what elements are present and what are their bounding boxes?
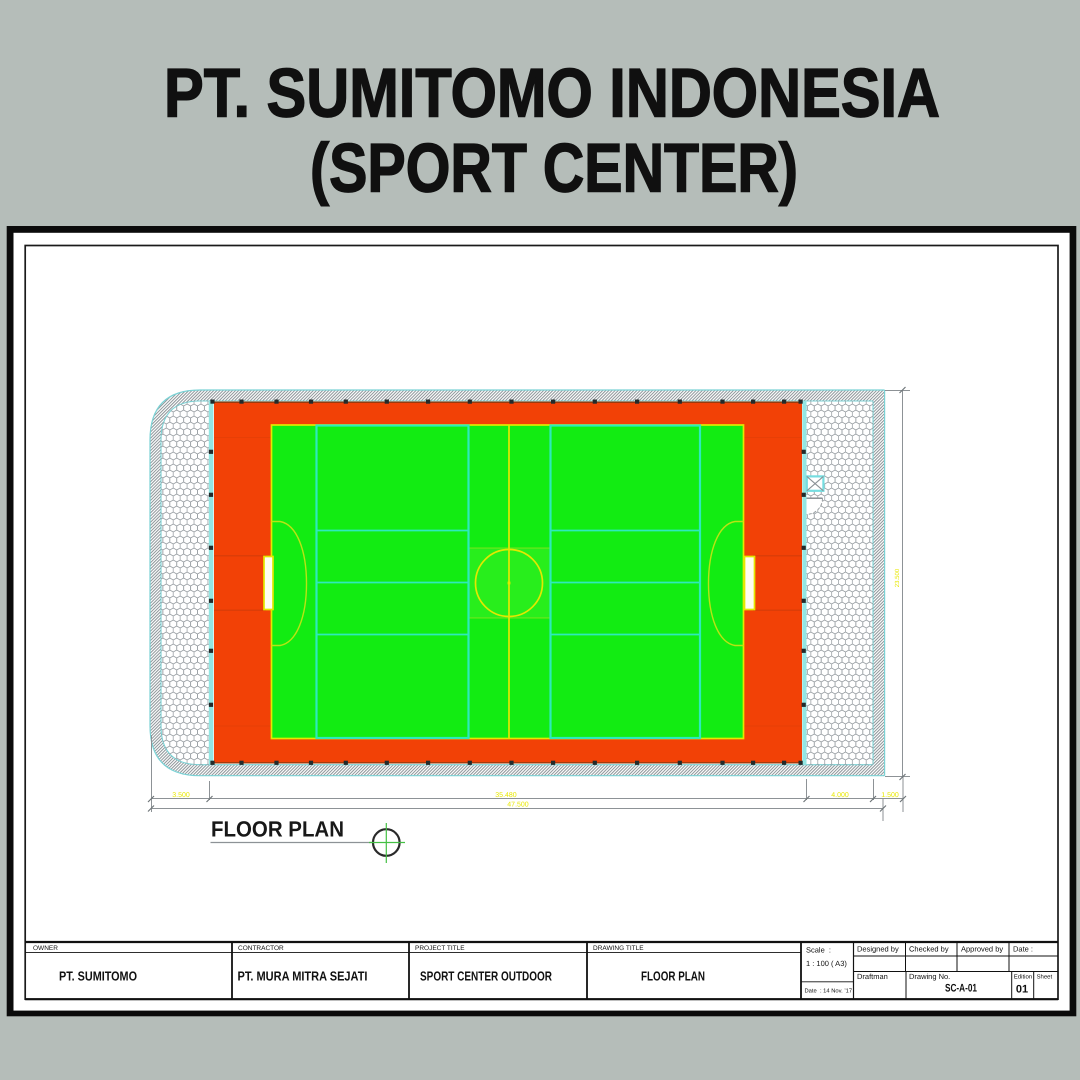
svg-text:Designed by: Designed by	[857, 945, 899, 954]
svg-text:01: 01	[1016, 984, 1028, 996]
svg-text:SC-A-01: SC-A-01	[945, 983, 977, 995]
svg-text:Drawing No.: Drawing No.	[909, 972, 950, 981]
svg-text:DRAWING TITLE: DRAWING TITLE	[593, 945, 644, 952]
svg-text:PROJECT TITLE: PROJECT TITLE	[415, 945, 465, 952]
svg-text:1.500: 1.500	[881, 792, 899, 799]
svg-text:FLOOR PLAN: FLOOR PLAN	[211, 817, 344, 842]
svg-text:Draftman: Draftman	[857, 972, 888, 981]
svg-text:(SPORT CENTER): (SPORT CENTER)	[310, 130, 798, 207]
svg-text:OWNER: OWNER	[33, 945, 58, 952]
svg-text:47.500: 47.500	[507, 802, 529, 809]
svg-text:Edition: Edition	[1014, 974, 1032, 981]
svg-text:35.480: 35.480	[495, 792, 517, 799]
svg-text:PT. MURA MITRA SEJATI: PT. MURA MITRA SEJATI	[238, 969, 368, 984]
svg-text:SPORT CENTER OUTDOOR: SPORT CENTER OUTDOOR	[420, 969, 552, 984]
svg-text:23.500: 23.500	[894, 568, 901, 587]
svg-text:PT. SUMITOMO INDONESIA: PT. SUMITOMO INDONESIA	[164, 55, 940, 132]
svg-text:3.500: 3.500	[172, 792, 190, 799]
svg-text:Approved by: Approved by	[961, 945, 1003, 954]
svg-text:Date : 14 Nov. ’17: Date : 14 Nov. ’17	[805, 989, 853, 995]
svg-text:Checked by: Checked by	[909, 945, 949, 954]
svg-text:Sheet: Sheet	[1037, 974, 1053, 981]
svg-text:Scale :: Scale :	[806, 946, 831, 955]
svg-text:PT. SUMITOMO: PT. SUMITOMO	[59, 969, 137, 984]
svg-text:1 : 100 ( A3): 1 : 100 ( A3)	[806, 959, 847, 968]
svg-text:FLOOR PLAN: FLOOR PLAN	[641, 969, 705, 984]
svg-text:Date :: Date :	[1013, 945, 1033, 954]
svg-text:CONTRACTOR: CONTRACTOR	[238, 945, 284, 952]
svg-text:4.000: 4.000	[831, 792, 849, 799]
